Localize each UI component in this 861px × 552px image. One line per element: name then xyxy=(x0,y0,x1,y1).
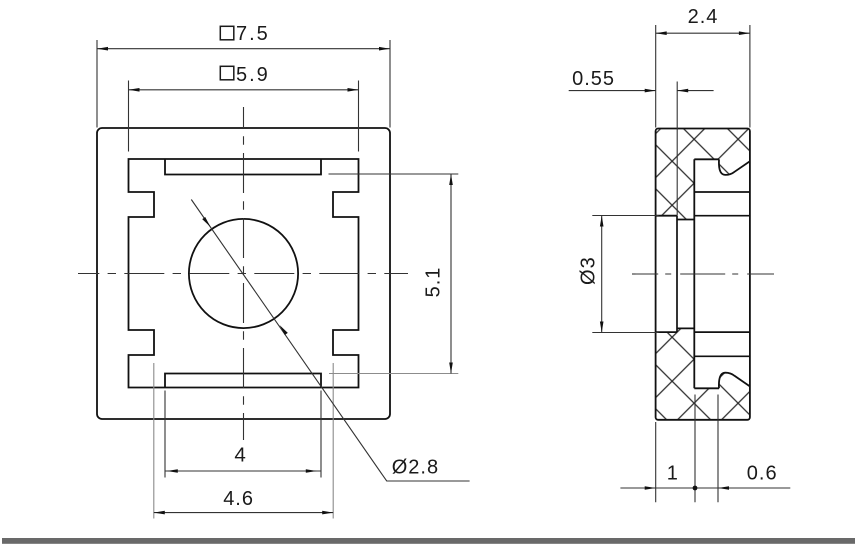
svg-text:1: 1 xyxy=(667,463,679,485)
svg-text:2.4: 2.4 xyxy=(688,6,719,28)
svg-text:Ø3: Ø3 xyxy=(578,256,600,285)
svg-text:0.55: 0.55 xyxy=(572,68,615,90)
svg-text:5.9: 5.9 xyxy=(236,64,270,86)
svg-text:4.6: 4.6 xyxy=(223,488,254,510)
svg-text:7.5: 7.5 xyxy=(236,23,270,45)
svg-text:4: 4 xyxy=(234,445,247,467)
svg-text:Ø2.8: Ø2.8 xyxy=(392,457,439,479)
svg-text:5.1: 5.1 xyxy=(423,267,445,298)
svg-text:0.6: 0.6 xyxy=(747,463,778,485)
